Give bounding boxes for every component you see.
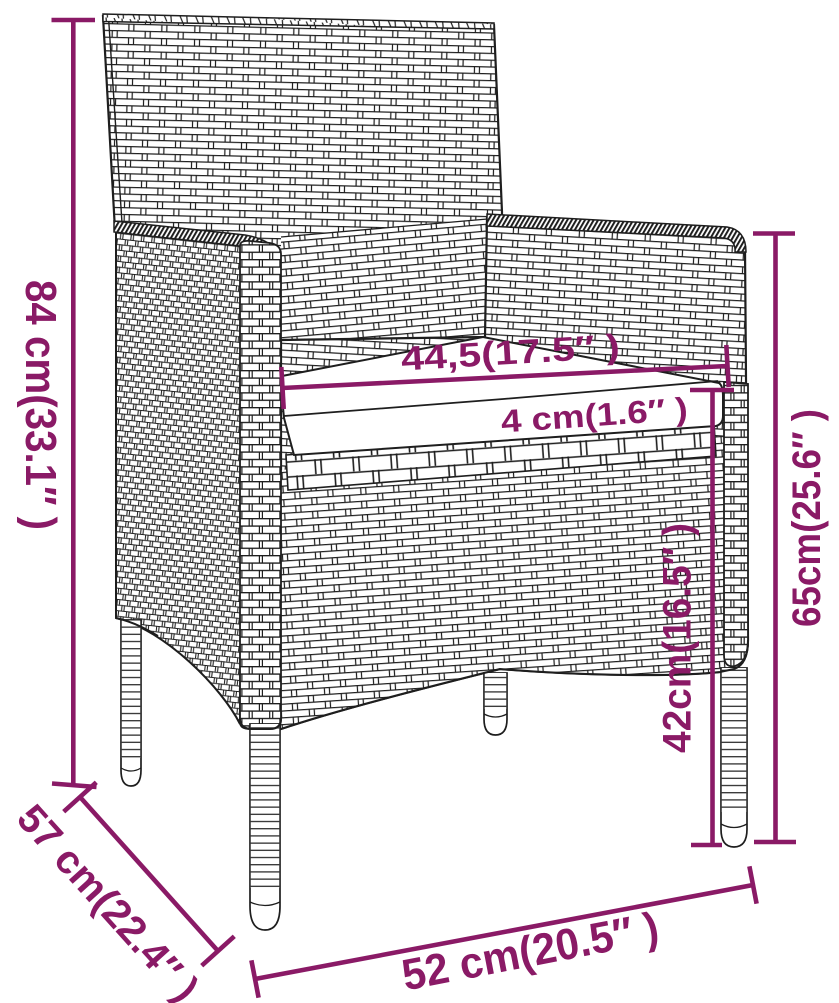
svg-text:65cm(25.6″ ): 65cm(25.6″ ) — [785, 409, 829, 627]
svg-text:84 cm(33.1″ ): 84 cm(33.1″ ) — [16, 280, 65, 530]
svg-text:42cm(16.5″ ): 42cm(16.5″ ) — [656, 523, 700, 753]
